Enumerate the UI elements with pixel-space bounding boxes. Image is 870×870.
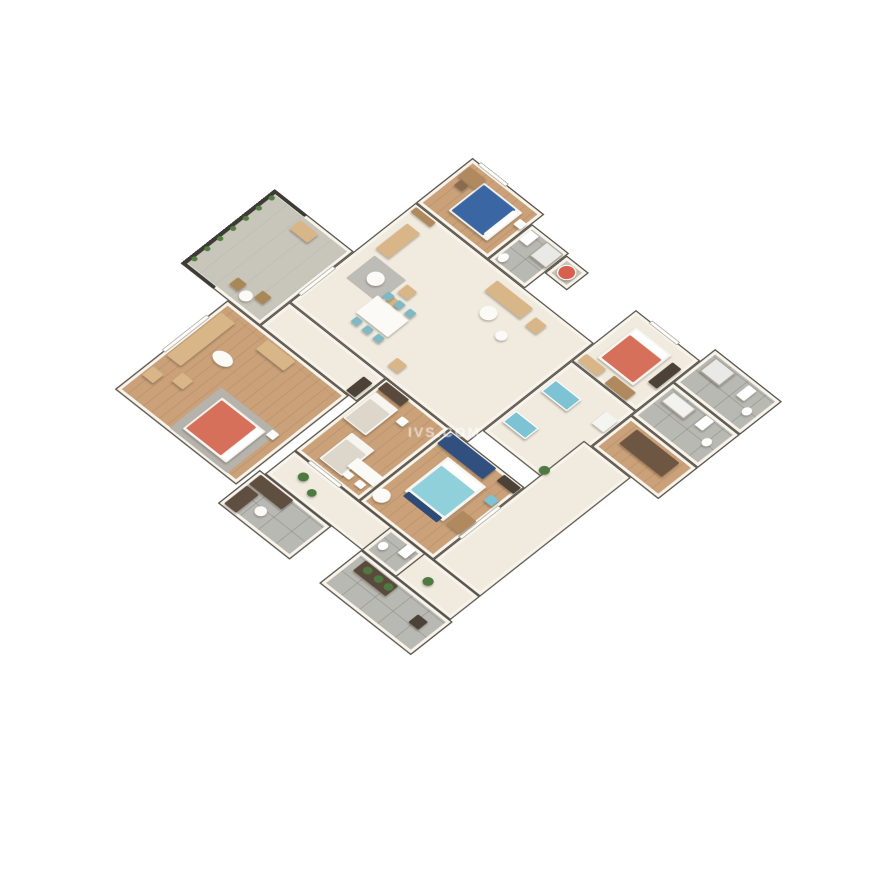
page-background: { "scene": { "watermark": "IVS.COM", "wa… xyxy=(0,0,870,870)
watermark-text: IVS.COM xyxy=(408,424,481,440)
